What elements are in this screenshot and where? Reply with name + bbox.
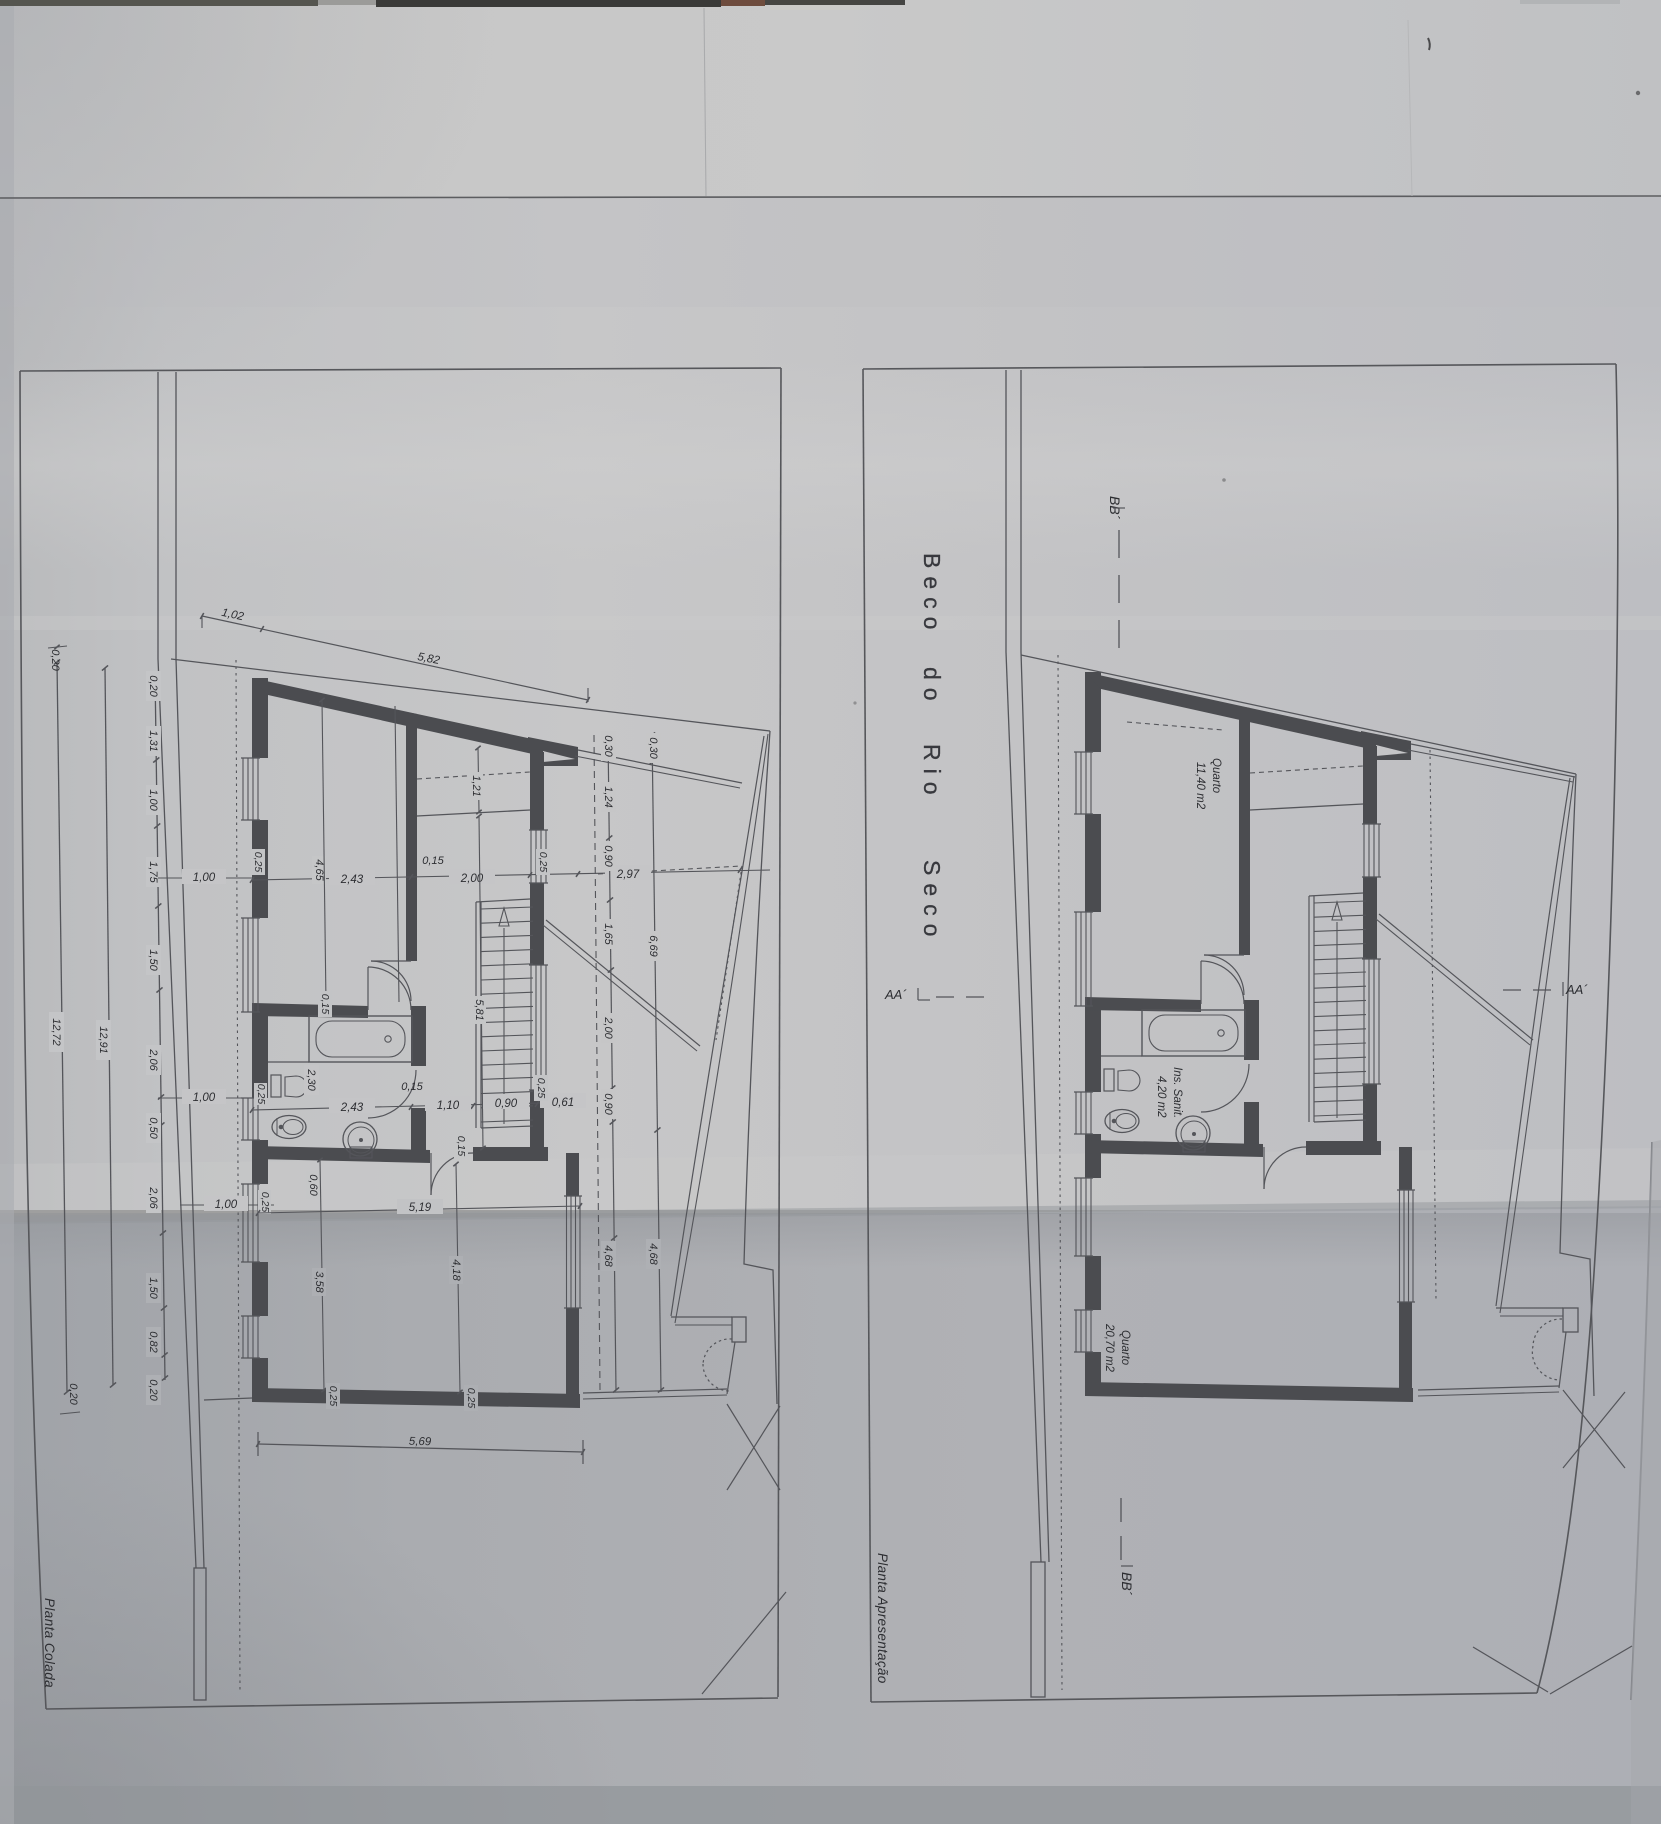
svg-text:Planta Colada: Planta Colada <box>42 1598 57 1688</box>
svg-text:0,60: 0,60 <box>307 1174 319 1196</box>
svg-text:2,00: 2,00 <box>602 1016 614 1039</box>
svg-text:1,00: 1,00 <box>193 872 216 884</box>
svg-text:12,91: 12,91 <box>97 1026 109 1054</box>
svg-text:0,30: 0,30 <box>602 735 614 757</box>
svg-text:2,30: 2,30 <box>305 1068 317 1091</box>
svg-text:BB´: BB´ <box>1119 1572 1135 1596</box>
svg-text:4,18: 4,18 <box>450 1259 462 1281</box>
svg-text:0,20: 0,20 <box>147 675 159 697</box>
svg-text:0,20: 0,20 <box>147 1379 159 1401</box>
svg-text:1,21: 1,21 <box>470 775 482 796</box>
svg-text:6,69: 6,69 <box>647 935 659 956</box>
svg-text:2,43: 2,43 <box>340 874 364 886</box>
svg-text:0,50: 0,50 <box>147 1117 159 1139</box>
svg-text:1,00: 1,00 <box>147 789 159 811</box>
svg-text:0,20: 0,20 <box>49 649 61 671</box>
svg-text:4,65: 4,65 <box>313 859 325 881</box>
svg-text:1,00: 1,00 <box>215 1199 238 1211</box>
svg-text:20,70 m2: 20,70 m2 <box>1103 1323 1115 1373</box>
svg-text:0,25: 0,25 <box>327 1386 339 1407</box>
svg-text:12,72: 12,72 <box>50 1018 62 1046</box>
svg-text:Quarto: Quarto <box>1210 758 1222 794</box>
svg-text:0,25: 0,25 <box>535 1078 547 1099</box>
svg-text:0,25: 0,25 <box>252 852 264 873</box>
svg-text:0,25: 0,25 <box>259 1192 271 1213</box>
svg-text:0,30: 0,30 <box>647 737 659 759</box>
svg-text:4,68: 4,68 <box>647 1243 659 1265</box>
svg-text:1,10: 1,10 <box>437 1100 460 1112</box>
svg-text:0,25: 0,25 <box>255 1084 267 1105</box>
svg-text:Ins. Sanit.: Ins. Sanit. <box>1171 1067 1183 1118</box>
svg-text:0,82: 0,82 <box>147 1331 159 1352</box>
svg-text:do: do <box>919 667 945 709</box>
svg-text:Quarto: Quarto <box>1119 1330 1131 1366</box>
svg-text:2,06: 2,06 <box>147 1186 159 1209</box>
svg-text:1,65: 1,65 <box>602 923 614 945</box>
svg-text:0,15: 0,15 <box>455 1136 467 1157</box>
svg-text:2,43: 2,43 <box>340 1102 364 1114</box>
svg-text:1,31: 1,31 <box>147 730 159 751</box>
svg-text:1,75: 1,75 <box>147 861 159 883</box>
svg-text:1,50: 1,50 <box>147 949 159 971</box>
svg-text:0,25: 0,25 <box>465 1388 477 1409</box>
svg-text:4,20 m2: 4,20 m2 <box>1155 1076 1167 1118</box>
svg-text:Seco: Seco <box>919 860 945 944</box>
svg-text:2,06: 2,06 <box>147 1048 159 1071</box>
svg-text:1,24: 1,24 <box>602 786 614 807</box>
svg-text:5,81: 5,81 <box>473 999 485 1020</box>
svg-text:Beco: Beco <box>919 553 945 637</box>
svg-text:5,19: 5,19 <box>409 1202 432 1214</box>
svg-text:0,25: 0,25 <box>537 852 549 873</box>
svg-text:0,15: 0,15 <box>422 855 444 867</box>
svg-text:0,61: 0,61 <box>552 1097 574 1109</box>
svg-text:AA´: AA´ <box>884 987 907 1002</box>
svg-text:0,20: 0,20 <box>67 1383 79 1405</box>
svg-text:4,68: 4,68 <box>602 1245 614 1267</box>
svg-text:Planta Apresentação: Planta Apresentação <box>875 1553 890 1684</box>
svg-text:3,58: 3,58 <box>313 1271 325 1293</box>
svg-text:Rio: Rio <box>919 744 945 803</box>
svg-text:11,40 m2: 11,40 m2 <box>1194 762 1206 810</box>
svg-text:5,69: 5,69 <box>409 1436 432 1448</box>
svg-text:0,15: 0,15 <box>319 994 331 1015</box>
svg-text:1,50: 1,50 <box>147 1277 159 1299</box>
svg-text:0,90: 0,90 <box>602 1093 614 1115</box>
svg-text:0,90: 0,90 <box>602 845 614 867</box>
svg-text:AA´: AA´ <box>1565 982 1588 997</box>
svg-text:0,15: 0,15 <box>401 1081 423 1093</box>
svg-text:1,00: 1,00 <box>193 1092 216 1104</box>
svg-text:2,97: 2,97 <box>616 869 640 881</box>
svg-text:0,90: 0,90 <box>495 1098 518 1110</box>
